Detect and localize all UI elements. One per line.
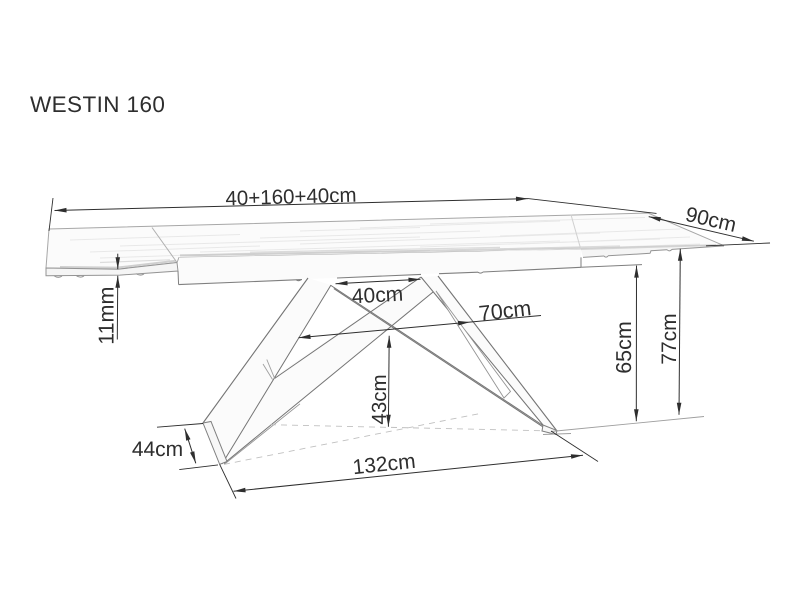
svg-text:40cm: 40cm — [351, 283, 403, 309]
svg-text:44cm: 44cm — [132, 438, 183, 461]
svg-text:132cm: 132cm — [352, 450, 417, 479]
svg-text:70cm: 70cm — [478, 296, 533, 326]
svg-text:40+160+40cm: 40+160+40cm — [225, 184, 357, 211]
svg-text:43cm: 43cm — [368, 374, 391, 424]
svg-text:11mm: 11mm — [94, 287, 118, 345]
svg-text:77cm: 77cm — [658, 313, 681, 364]
svg-text:65cm: 65cm — [612, 321, 636, 374]
svg-text:WESTIN 160: WESTIN 160 — [30, 92, 165, 117]
